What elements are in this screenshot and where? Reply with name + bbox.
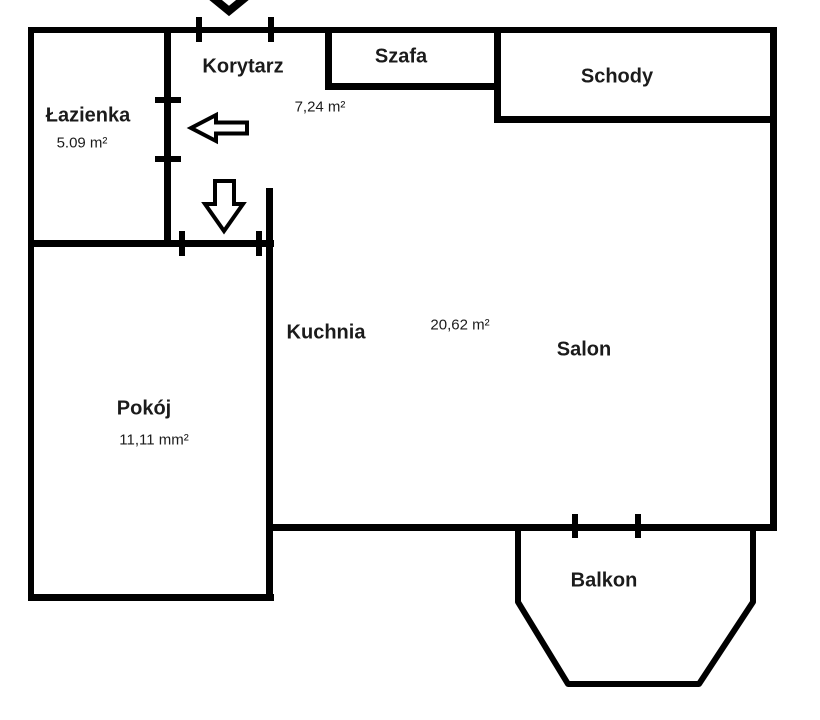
- room-label-lazienka: Łazienka: [46, 105, 130, 128]
- entrance-down-chevron-icon: [212, 0, 246, 11]
- room-label-balkon: Balkon: [571, 570, 638, 593]
- room-label-kuchnia: Kuchnia: [287, 322, 366, 345]
- room-label-schody: Schody: [581, 66, 653, 89]
- room-area-salon: 20,62 m²: [430, 317, 489, 334]
- balkon-outline: [518, 528, 753, 684]
- hollow-down-arrow-icon: [205, 181, 243, 231]
- room-area-korytarz: 7,24 m²: [295, 99, 346, 116]
- room-area-lazienka: 5.09 m²: [57, 135, 108, 152]
- room-label-salon: Salon: [557, 339, 611, 362]
- room-area-pokoj: 11,11 mm²: [119, 432, 188, 449]
- room-label-pokoj: Pokój: [117, 398, 171, 421]
- floor-plan: Łazienka 5.09 m² Korytarz 7,24 m² Szafa …: [0, 0, 820, 720]
- hollow-left-arrow-icon: [191, 115, 247, 141]
- room-label-szafa: Szafa: [375, 46, 427, 69]
- room-label-korytarz: Korytarz: [202, 56, 283, 79]
